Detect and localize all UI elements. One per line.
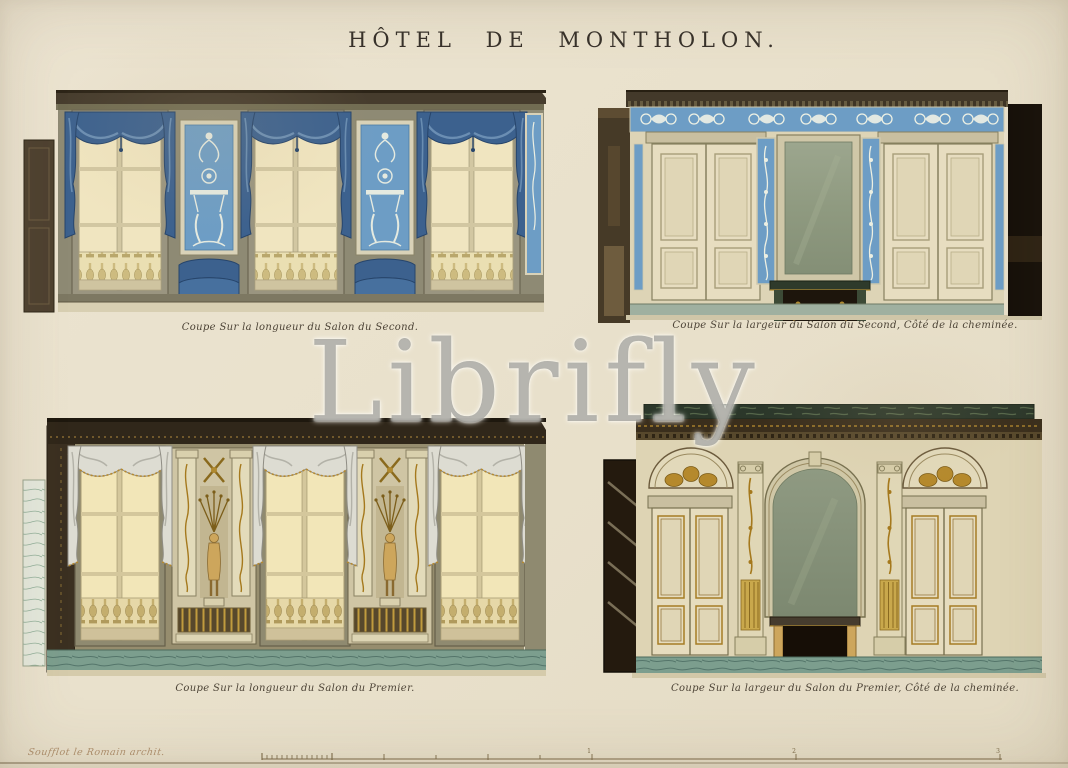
arabesque-pilaster-strip <box>526 114 542 274</box>
scale-label-1: 1 <box>587 748 591 755</box>
fireplace <box>770 617 860 660</box>
cornice <box>636 419 1042 440</box>
door-entablature <box>646 132 766 143</box>
section-cut-dark <box>1008 104 1042 316</box>
door-entablature <box>648 496 732 508</box>
caption-salon-second-longueur: Coupe Sur la longueur du Salon du Second… <box>60 322 540 334</box>
architect-signature: Soufflot le Romain archit. <box>27 747 165 758</box>
marble-baseboard <box>47 650 546 676</box>
marble-baseboard <box>632 657 1046 678</box>
engraved-plate: HÔTEL DE MONTHOLON. <box>0 0 1068 768</box>
pilaster-plinth <box>735 637 766 655</box>
door-entablature <box>878 132 998 143</box>
section-cut-wall <box>598 108 630 323</box>
arabesque-strip <box>634 144 643 290</box>
scale-label-3: 3 <box>996 748 1000 755</box>
overmantel-mirror <box>777 135 860 281</box>
gilt-pilaster <box>738 462 763 637</box>
caption-salon-second-largeur: Coupe Sur la largeur du Salon du Second,… <box>640 320 1050 332</box>
arabesque-panel <box>180 120 238 255</box>
scale-label-2: 2 <box>792 748 796 755</box>
arabesque-pilaster <box>757 138 775 284</box>
caption-salon-premier-longueur: Coupe Sur la longueur du Salon du Premie… <box>60 683 530 695</box>
double-door <box>652 508 728 655</box>
marble-section-strip <box>23 480 45 666</box>
elevation-salon-premier-largeur <box>598 404 1050 679</box>
statue-pier-panel <box>348 448 432 644</box>
french-window <box>435 446 525 646</box>
pilaster-plinth <box>874 637 905 655</box>
double-door <box>884 144 992 300</box>
arched-overmantel-mirror <box>765 452 865 617</box>
floor-line <box>58 294 544 312</box>
cornice <box>47 418 546 444</box>
cornice <box>626 90 1008 107</box>
sheet-edge-line <box>0 762 1068 764</box>
caption-salon-premier-largeur: Coupe Sur la largeur du Salon du Premier… <box>640 683 1050 695</box>
double-door <box>652 144 760 300</box>
elevation-salon-second-longueur <box>22 88 548 326</box>
page-title: HÔTEL DE MONTHOLON. <box>60 28 1068 52</box>
statue-pier-panel <box>172 448 256 644</box>
baseboard <box>626 304 1042 320</box>
pier-right <box>525 444 546 650</box>
french-window <box>75 446 165 646</box>
double-door <box>906 508 982 655</box>
keystone <box>809 452 821 466</box>
arabesque-pilaster <box>862 138 880 284</box>
cornice <box>56 90 546 110</box>
marble-entablature <box>644 404 1034 419</box>
elevation-salon-second-largeur <box>598 86 1048 323</box>
scale-subdivisions <box>262 755 332 759</box>
door-entablature <box>902 496 986 508</box>
french-window <box>260 446 350 646</box>
arabesque-frieze <box>630 107 1004 132</box>
section-cut-door <box>24 140 54 312</box>
arabesque-strip <box>995 144 1004 290</box>
gilt-pilaster <box>877 462 902 637</box>
arabesque-panel <box>356 120 414 255</box>
elevation-salon-premier-longueur <box>20 418 550 680</box>
